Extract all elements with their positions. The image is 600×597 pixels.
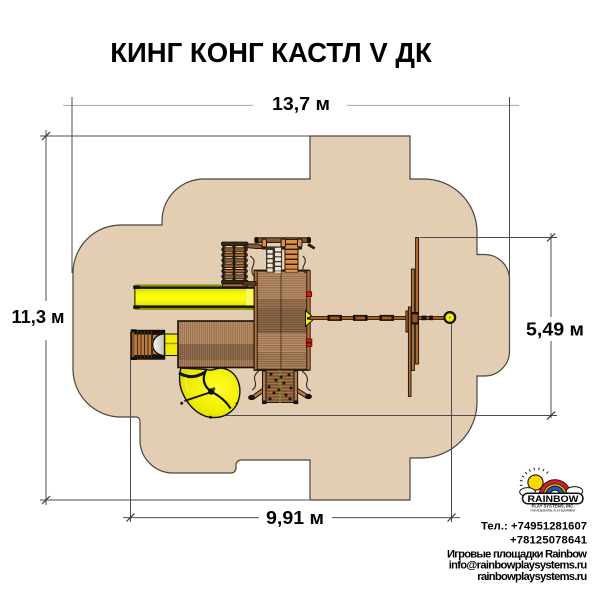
svg-text:info@rainbowplaysystems.ru: info@rainbowplaysystems.ru	[449, 560, 588, 572]
svg-text:RAINBOW: RAINBOW	[528, 494, 580, 504]
svg-text:5,49 м: 5,49 м	[526, 320, 584, 340]
svg-text:11,3 м: 11,3 м	[12, 307, 65, 327]
svg-text:+78125078641: +78125078641	[510, 535, 587, 547]
svg-text:rainbowplaysystems.ru: rainbowplaysystems.ru	[477, 571, 587, 583]
svg-text:FOR RESIDENTIAL PLAY EQUIPMENT: FOR RESIDENTIAL PLAY EQUIPMENT	[531, 509, 576, 513]
svg-text:Тел.: +74951281607: Тел.: +74951281607	[481, 521, 587, 533]
svg-text:КИНГ КОНГ КАСТЛ V ДК: КИНГ КОНГ КАСТЛ V ДК	[110, 37, 432, 68]
svg-text:9,91 м: 9,91 м	[266, 508, 324, 528]
svg-text:13,7 м: 13,7 м	[272, 94, 330, 114]
